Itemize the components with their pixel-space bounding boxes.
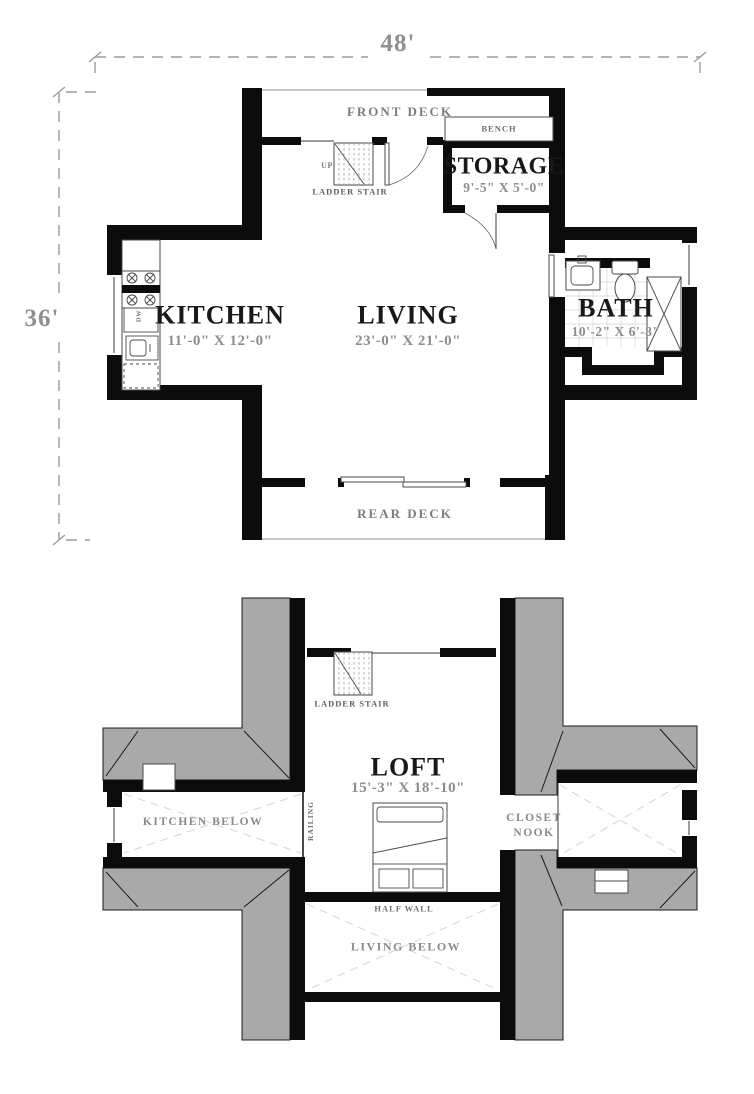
bench-label: BENCH — [481, 125, 516, 134]
kitchen-below-label: KITCHEN BELOW — [143, 816, 263, 828]
bath-room-label: BATH — [578, 294, 654, 321]
half-wall-label: HALF WALL — [374, 905, 433, 914]
storage-room-label: STORAGE — [444, 154, 564, 179]
overall-width-dimension: 48' — [375, 31, 422, 57]
closet-nook-label-line2: NOOK — [513, 827, 554, 839]
bath-door — [549, 255, 554, 297]
loft-room-label: LOFT — [371, 753, 446, 780]
up-label: UP — [321, 162, 333, 170]
loft-room-dims: 15'-3" X 18'-10" — [351, 781, 465, 797]
ladder-stair-label-first: LADDER STAIR — [312, 188, 387, 197]
overall-depth-dimension: 36' — [19, 306, 66, 332]
living-room-dims: 23'-0" X 21'-0" — [355, 334, 461, 350]
rear-sliding-door — [341, 477, 466, 487]
rear-deck-label: REAR DECK — [357, 507, 453, 521]
bath-sink — [566, 256, 600, 290]
storage-room-dims: 9'-5" X 5'-0" — [463, 181, 544, 195]
kitchen-room-label: KITCHEN — [155, 301, 285, 328]
plan-linework — [0, 0, 754, 1094]
roof-dormer-notch — [143, 764, 175, 790]
dishwasher-label: DW — [137, 310, 144, 322]
closet-nook-label-line1: CLOSET — [506, 812, 562, 824]
living-below-label: LIVING BELOW — [351, 941, 461, 954]
front-door — [385, 143, 428, 185]
roof-top-right — [515, 598, 697, 795]
front-deck-label: FRONT DECK — [347, 105, 453, 119]
bed — [373, 803, 447, 892]
ladder-stair-first-floor — [334, 143, 373, 185]
roof-bottom-left — [103, 868, 290, 1040]
bath-room-dims: 10'-2" X 6'-8" — [572, 325, 661, 339]
floor-plan-sheet: 48' 36' FRONT DECK BENCH UP LADDER STAIR… — [0, 0, 754, 1094]
kitchen-room-dims: 11'-0" X 12'-0" — [168, 334, 273, 350]
storage-door — [465, 213, 496, 249]
ladder-stair-second-floor — [334, 652, 372, 695]
railing-label: RAILING — [307, 801, 315, 841]
half-wall — [305, 892, 500, 902]
ladder-stair-label-second: LADDER STAIR — [314, 700, 389, 709]
living-room-label: LIVING — [357, 301, 458, 328]
skylight — [595, 870, 628, 893]
roof-top-left — [103, 598, 290, 780]
